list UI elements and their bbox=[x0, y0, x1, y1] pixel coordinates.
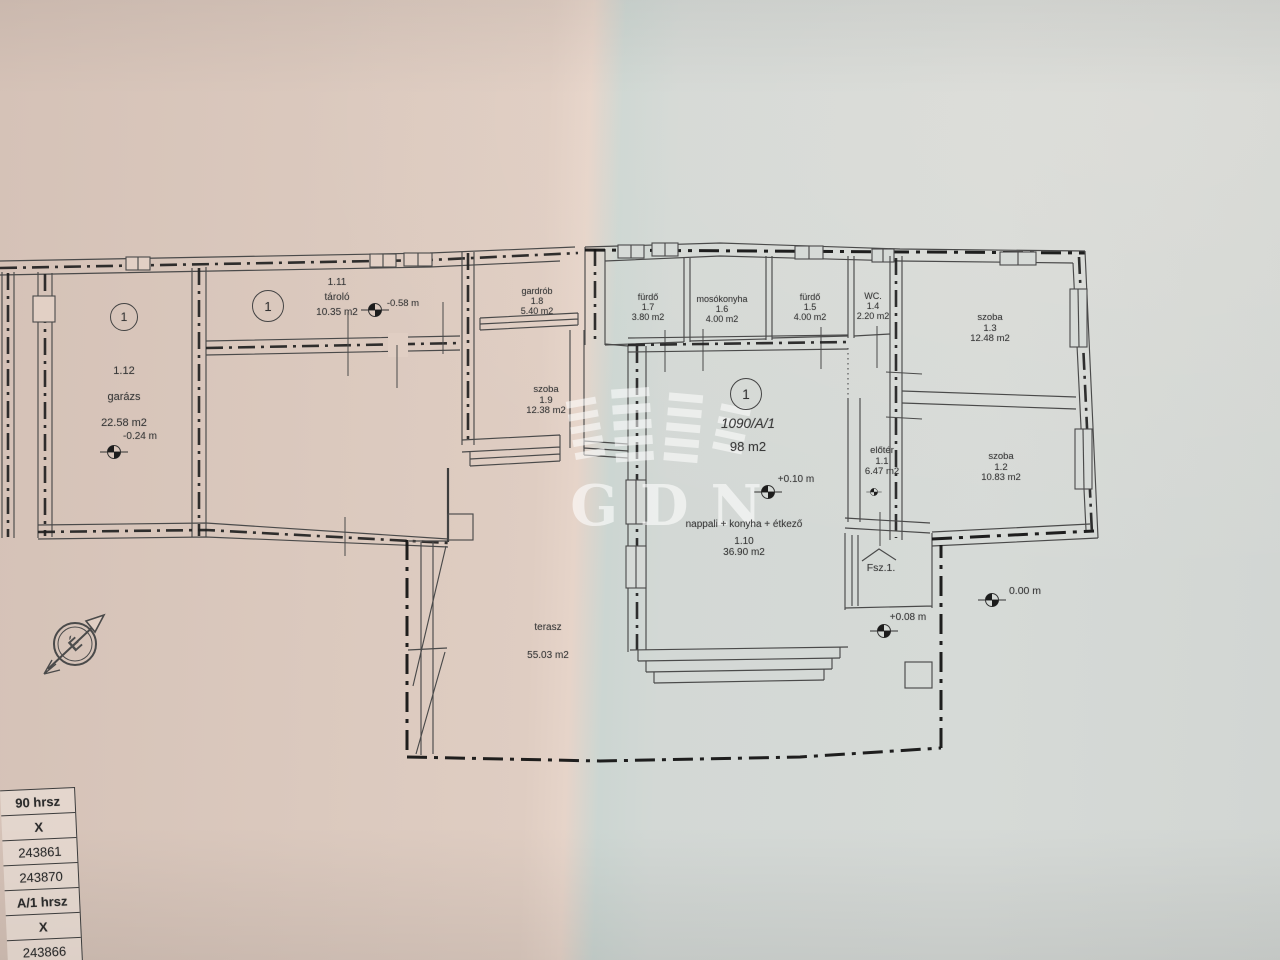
hrsz-table: 90 hrsz X 243861 243870 A/1 hrsz X 24386… bbox=[0, 787, 84, 960]
room-label-szoba-1-2: szoba1.210.83 m2 bbox=[981, 452, 1021, 484]
room-label-wc: WC.1.42.20 m2 bbox=[857, 291, 890, 321]
room-label-szoba-1-9: szoba1.912.38 m2 bbox=[526, 385, 566, 417]
room-label-furdo-1-5: fürdő1.54.00 m2 bbox=[794, 292, 827, 322]
room-label-szoba-1-3: szoba1.312.48 m2 bbox=[970, 313, 1010, 345]
floor-plan-photo: É bbox=[0, 0, 1280, 960]
elevation-udvar-2: 0.00 m bbox=[1009, 585, 1041, 597]
unit-circle-main: 1 bbox=[730, 378, 762, 410]
room-label-garazs: 1.12garázs22.58 m2 bbox=[101, 358, 147, 436]
floor-plan-linework: É bbox=[0, 0, 1280, 960]
parcel-area: 98 m2 bbox=[721, 435, 775, 459]
table-row: X bbox=[1, 813, 76, 841]
unit-circle-storage: 1 bbox=[252, 290, 284, 322]
window-symbols-house bbox=[618, 243, 1092, 489]
entrance-arrow bbox=[862, 549, 896, 561]
walls-garage-block bbox=[0, 247, 578, 556]
room-label-furdo-1-7: fürdő1.73.80 m2 bbox=[632, 292, 665, 322]
table-row: 243861 bbox=[2, 838, 77, 866]
room-label-gardrob: gardrób1.85.40 m2 bbox=[521, 286, 554, 316]
elevation-tarolo: -0.58 m bbox=[387, 298, 419, 309]
table-row: 90 hrsz bbox=[0, 788, 75, 816]
table-row: 243870 bbox=[4, 863, 79, 891]
elevation-udvar-1: +0.08 m bbox=[890, 612, 926, 623]
room-label-nappali: nappali + konyha + étkező 1.10 36.90 m2 bbox=[686, 519, 803, 558]
planter-square bbox=[905, 662, 932, 688]
room-label-tarolo: 1.11tároló10.35 m2 bbox=[316, 275, 358, 320]
stairs bbox=[408, 541, 447, 755]
parcel-label: 1090/A/1 98 m2 bbox=[721, 413, 775, 459]
unit-circle-garage: 1 bbox=[110, 303, 138, 331]
parcel-id: 1090/A/1 bbox=[721, 413, 775, 435]
table-row: A/1 hrsz bbox=[5, 888, 80, 916]
room-label-mosokonyha: mosókonyha1.64.00 m2 bbox=[696, 294, 747, 324]
entrance-label: Fsz.1. bbox=[867, 562, 896, 574]
room-label-eloter: előtér1.16.47 m2 bbox=[865, 446, 899, 478]
elevation-garazs: -0.24 m bbox=[123, 431, 157, 442]
elevation-nappali: +0.10 m bbox=[778, 474, 814, 485]
table-row: X bbox=[6, 913, 81, 941]
room-label-terasz: terasz 55.03 m2 bbox=[527, 622, 569, 661]
north-arrow: É bbox=[44, 615, 104, 674]
terrace-boundary bbox=[407, 540, 941, 761]
table-row: 243866 bbox=[7, 938, 82, 960]
terrace-steps bbox=[630, 647, 848, 683]
